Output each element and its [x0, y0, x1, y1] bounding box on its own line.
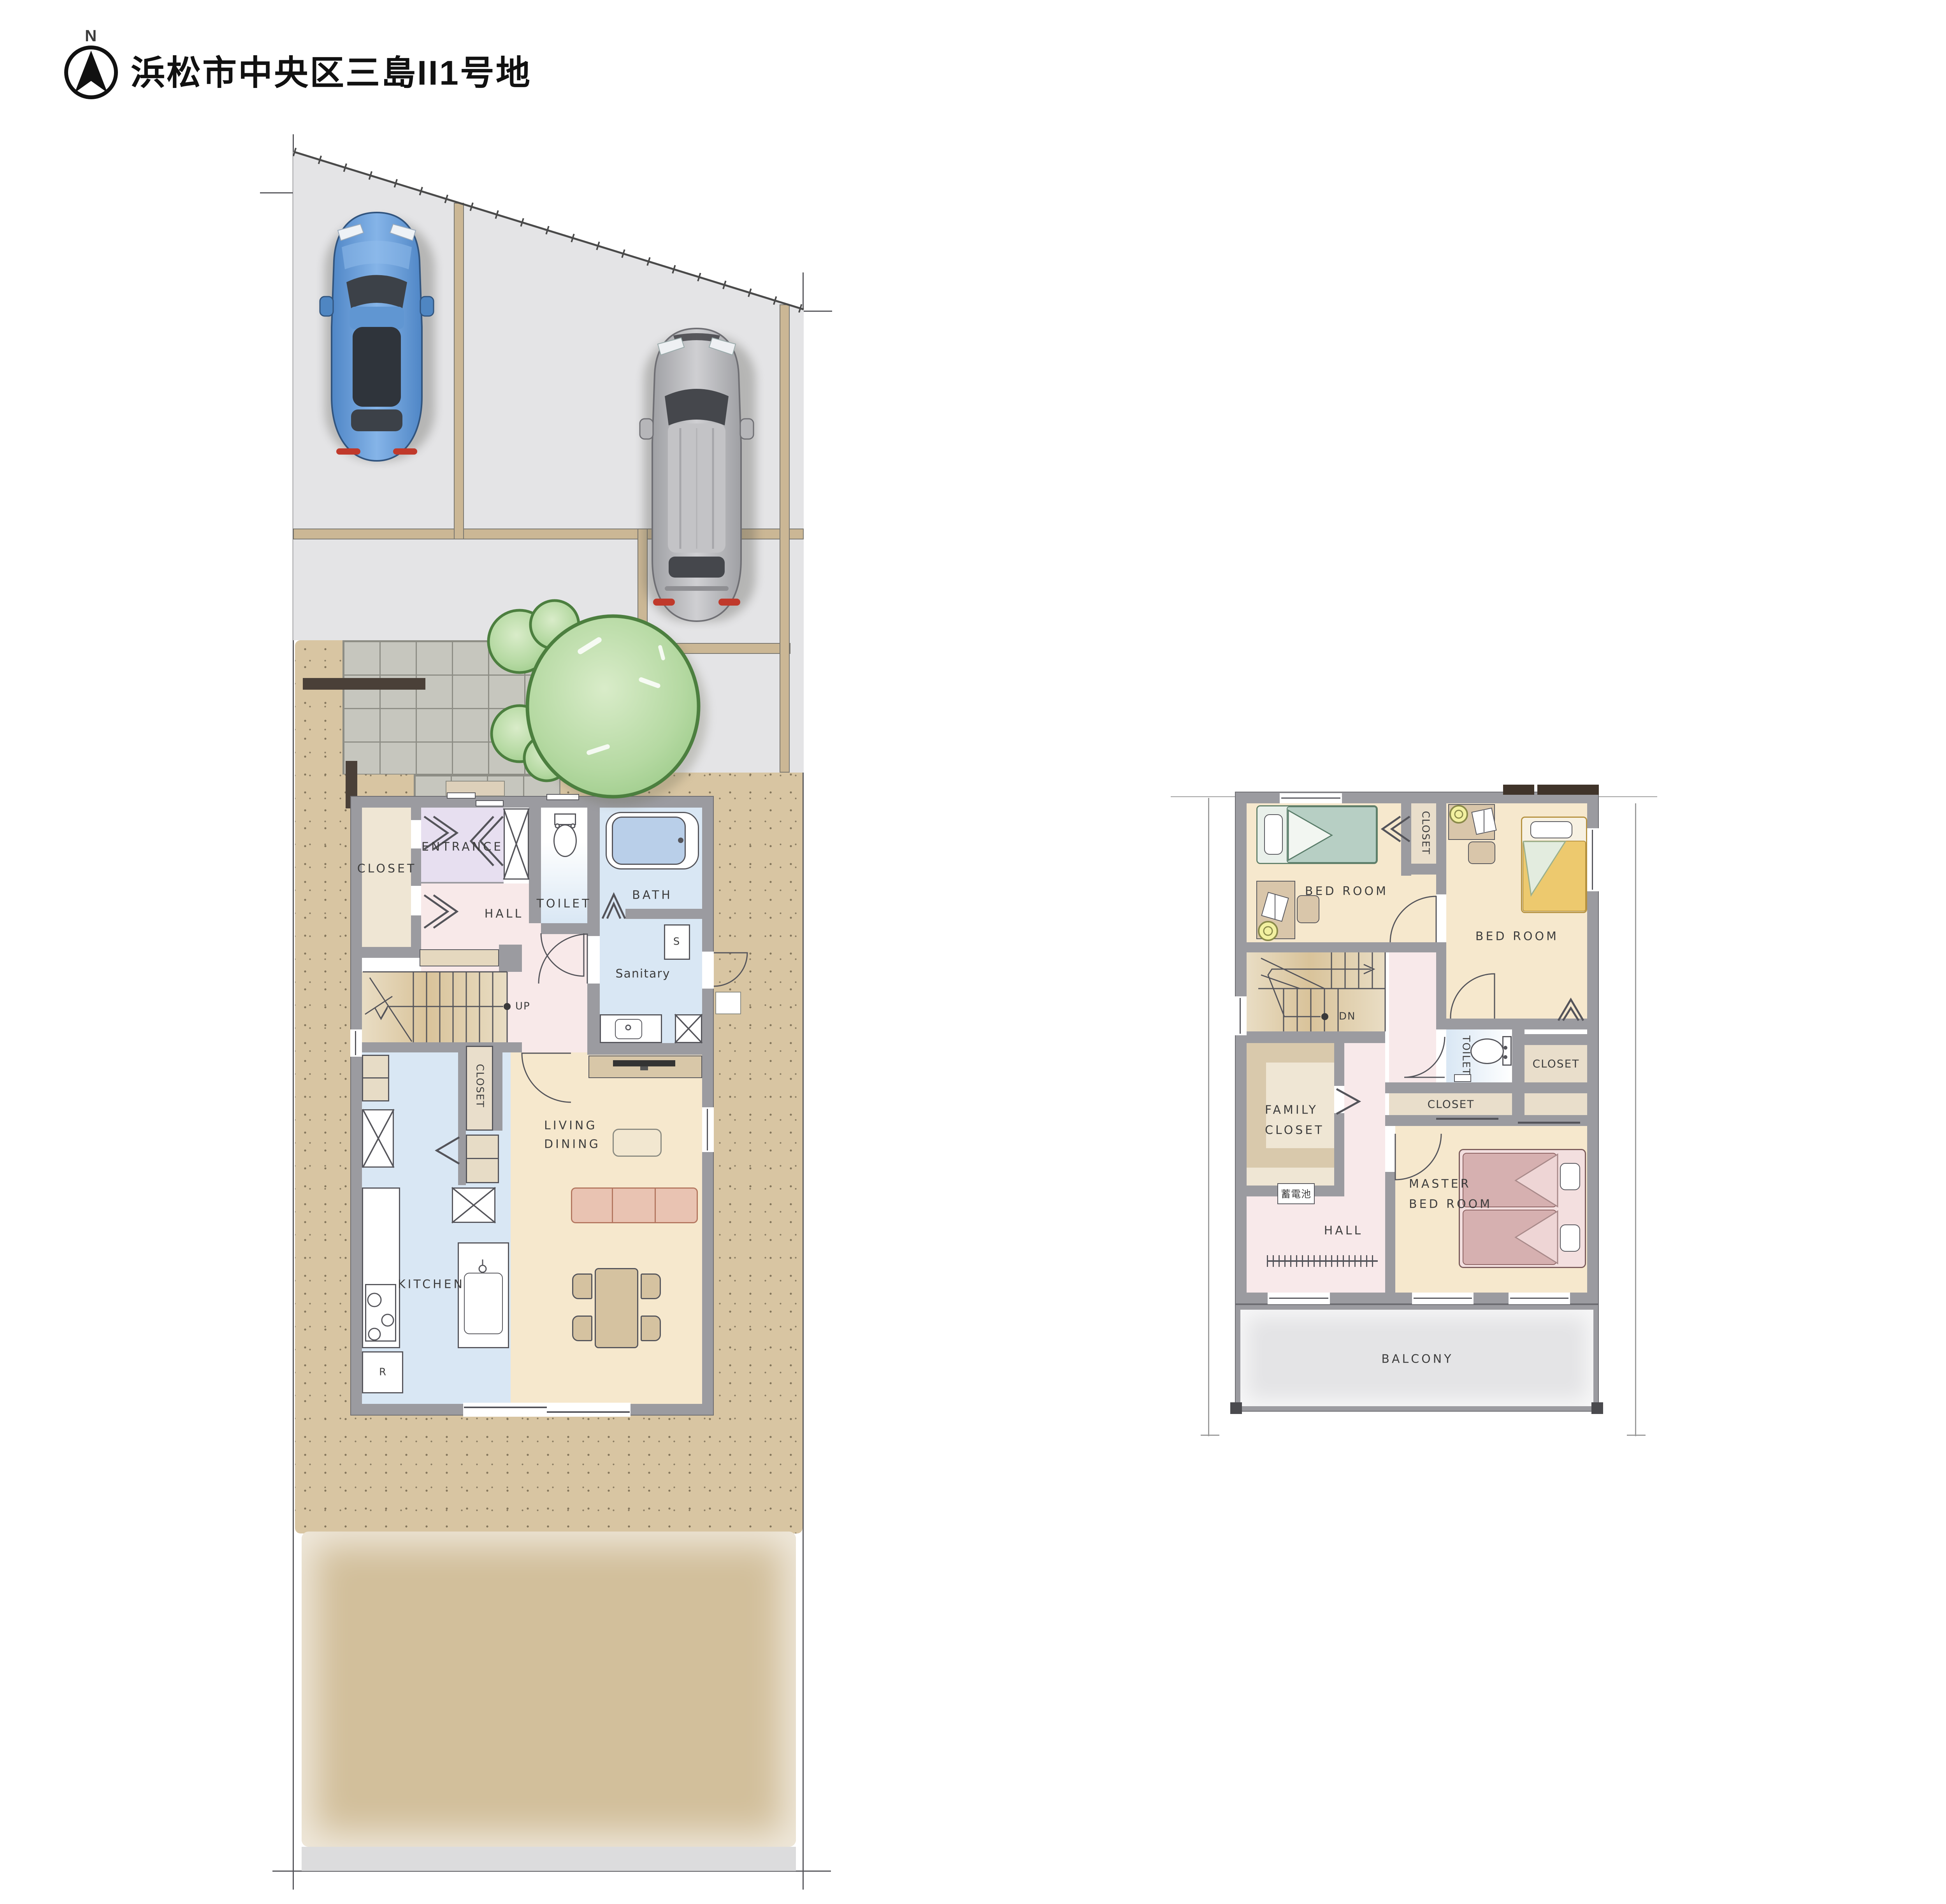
wall-segment	[1411, 864, 1439, 875]
room-label-closet-mid-2f: CLOSET	[1428, 1099, 1475, 1111]
dimension-line-right-2f	[1635, 803, 1636, 1436]
master-pillow	[1560, 1163, 1580, 1190]
wall-segment	[1512, 1029, 1524, 1082]
bedroom-right-window	[1587, 828, 1599, 891]
parcel-divider	[780, 304, 790, 773]
terrace-window-sash	[464, 1407, 547, 1408]
wall-segment	[1385, 1172, 1395, 1293]
bed-right-blanket	[1523, 841, 1586, 912]
dining-chair	[572, 1316, 592, 1341]
vanity-basin	[615, 1019, 642, 1039]
bed-right-pillow	[1530, 821, 1572, 838]
sanitary-side-door-opening	[702, 952, 714, 989]
coffee-table	[613, 1129, 662, 1157]
pantry-cabinet-divider	[363, 1077, 388, 1078]
kitchen-cupboard-x	[362, 1109, 394, 1168]
room-label-pantry-closet: CLOSET	[474, 1064, 485, 1108]
room-label-kitchen: KITCHEN	[398, 1278, 465, 1291]
washing-machine	[675, 1014, 702, 1043]
f1-stairs-floor	[362, 972, 507, 1042]
wall-segment	[1247, 1031, 1385, 1043]
lot-boundary-tick	[803, 311, 832, 312]
wall-segment	[587, 984, 600, 1043]
wall-segment	[1436, 803, 1446, 894]
living-terrace-window	[463, 1403, 631, 1417]
sofa-seam	[655, 1189, 656, 1222]
wall-segment	[411, 808, 421, 820]
wall-segment	[1401, 803, 1411, 876]
wall-segment	[458, 1042, 466, 1185]
room-label-balcony: BALCONY	[1381, 1353, 1453, 1366]
page-title: 浜松市中央区三島II1号地	[131, 54, 532, 92]
label-battery: 蓄電池	[1281, 1189, 1311, 1200]
f2-hall-bottom-floor	[1247, 1196, 1395, 1293]
wall-segment	[541, 923, 587, 934]
wall-segment	[1385, 1082, 1587, 1093]
lot-boundary-tick	[260, 192, 295, 193]
room-label-family-closet-1: FAMILY	[1265, 1104, 1318, 1117]
tv	[613, 1060, 675, 1066]
living-side-window	[702, 1107, 714, 1152]
road-strip	[302, 1847, 796, 1871]
window-sash	[1281, 797, 1340, 799]
room-label-sanitary: Sanitary	[615, 968, 670, 980]
stove	[365, 1284, 396, 1342]
sofa-seam	[612, 1189, 613, 1222]
dimension-tick	[1627, 1435, 1646, 1436]
wall-segment	[493, 1046, 502, 1131]
toilet2-bowl	[1470, 1038, 1504, 1064]
closet-sliding-door-mark	[1436, 1118, 1498, 1120]
north-label: N	[85, 27, 97, 45]
window-sash	[1414, 1298, 1472, 1299]
room-label-living-1: LIVING	[544, 1119, 597, 1132]
approach-walkway	[342, 640, 560, 775]
room-label-hall-2f: HALL	[1324, 1224, 1363, 1237]
chair-right	[1468, 841, 1495, 864]
window-sash	[1240, 998, 1241, 1034]
bed-left-pillow	[1264, 814, 1283, 855]
island-sink	[464, 1273, 503, 1334]
room-label-bedroom-left: BED ROOM	[1305, 885, 1388, 898]
f1-living-floor	[511, 1052, 702, 1404]
wall-segment	[362, 947, 421, 958]
side-door-step	[715, 992, 741, 1014]
wall-segment	[1334, 1043, 1344, 1086]
garden-yard	[302, 1532, 796, 1847]
label-fridge-r: R	[379, 1367, 387, 1378]
wall-segment	[1247, 942, 1436, 952]
solar-panel	[1537, 785, 1599, 795]
wall-segment	[625, 909, 702, 919]
f2-stairs-floor	[1247, 952, 1385, 1031]
stair-window	[350, 1029, 362, 1057]
room-label-bath: BATH	[632, 889, 673, 902]
parcel-divider	[293, 529, 804, 539]
f2-hall-mid-floor	[1344, 1043, 1385, 1196]
window-sash	[1592, 830, 1593, 890]
stair-window-sash	[355, 1031, 356, 1055]
family-closet-shelf	[1247, 1063, 1266, 1148]
family-closet-shelf	[1247, 1148, 1334, 1168]
dimension-tick	[1201, 1435, 1219, 1436]
wall-segment	[411, 915, 421, 947]
bed-left-blanket	[1287, 806, 1377, 863]
terrace-window-sash	[547, 1411, 630, 1413]
f1-genkan-step-line	[421, 882, 504, 883]
wall-segment	[499, 945, 522, 972]
room-label-bedroom-right: BED ROOM	[1475, 930, 1559, 943]
toilet-tank	[554, 813, 576, 825]
toilet-window	[546, 794, 579, 800]
north-arrow-icon	[0, 0, 1946, 1904]
dining-table	[595, 1268, 638, 1348]
f2-hall-corridor-floor	[1389, 942, 1436, 1082]
entrance-sliding-door	[447, 792, 476, 799]
window-sash	[1510, 1298, 1568, 1299]
fence-bar	[303, 678, 425, 690]
room-label-closet-side-2f: CLOSET	[1533, 1058, 1580, 1070]
dimension-line-left-2f	[1208, 798, 1209, 1436]
bathtub-water	[612, 817, 686, 865]
wall-segment	[1385, 1115, 1587, 1126]
family-closet-shelf	[1247, 1043, 1334, 1063]
room-label-toilet-1f: TOILET	[537, 898, 592, 910]
closet-sliding-door-mark	[1518, 1122, 1580, 1124]
sofa	[571, 1187, 698, 1223]
balcony-post	[1230, 1402, 1242, 1414]
wall-segment	[1512, 1093, 1524, 1115]
room-label-entrance: ENTRANCE	[422, 841, 503, 854]
master-pillow	[1560, 1224, 1580, 1252]
master-mattress	[1463, 1210, 1557, 1265]
wall-segment	[587, 1043, 702, 1055]
dining-chair	[572, 1273, 592, 1299]
balcony-post	[1591, 1402, 1603, 1414]
pantry-lower-divider	[467, 1158, 498, 1159]
f2-closet-mid-right-floor	[1524, 1093, 1587, 1115]
solar-panel	[1503, 785, 1534, 795]
f1-closet-floor	[362, 808, 411, 947]
f1-stair-landing-shelf	[420, 949, 499, 966]
room-label-living-2: DINING	[544, 1138, 601, 1151]
label-stairs-dn: DN	[1339, 1011, 1356, 1022]
tv-stand	[640, 1066, 648, 1070]
room-label-master-1: MASTER	[1409, 1178, 1471, 1191]
stairs2-window	[1235, 996, 1247, 1035]
label-stairs-up: UP	[515, 1001, 530, 1012]
room-label-closet-1f: CLOSET	[357, 862, 417, 875]
wall-segment	[587, 909, 600, 936]
dining-chair	[641, 1273, 661, 1299]
bathtub-drain	[678, 838, 683, 843]
room-label-master-2: BED ROOM	[1409, 1198, 1492, 1211]
room-label-toilet-2f: TOILET	[1460, 1036, 1472, 1076]
entrance-sliding-door	[476, 800, 504, 806]
wall-segment	[587, 808, 600, 909]
label-storage-s: S	[673, 936, 681, 948]
shoe-cabinet	[504, 808, 529, 880]
parcel-divider	[454, 203, 464, 539]
room-label-family-closet-2: CLOSET	[1265, 1124, 1324, 1137]
wall-segment	[1524, 1034, 1587, 1045]
window-sash	[1269, 1298, 1328, 1299]
living-side-window-sash	[707, 1109, 708, 1150]
floor-plan-canvas: N 浜松市中央区三島II1号地	[0, 0, 1946, 1904]
planter-post	[550, 696, 567, 714]
parcel-divider	[638, 529, 648, 773]
dining-chair	[641, 1316, 661, 1341]
wall-segment	[1334, 1113, 1344, 1186]
chair-left	[1297, 895, 1319, 923]
room-label-closet-top-2f: CLOSET	[1420, 811, 1431, 855]
plan-linework	[0, 0, 1946, 1904]
kitchen-counter-x	[452, 1187, 495, 1223]
parcel-divider	[646, 643, 790, 654]
wall-segment	[1436, 1019, 1587, 1029]
toilet-bowl	[553, 824, 577, 857]
room-label-hall-1f: HALL	[485, 908, 524, 920]
wall-segment	[1436, 942, 1446, 1019]
